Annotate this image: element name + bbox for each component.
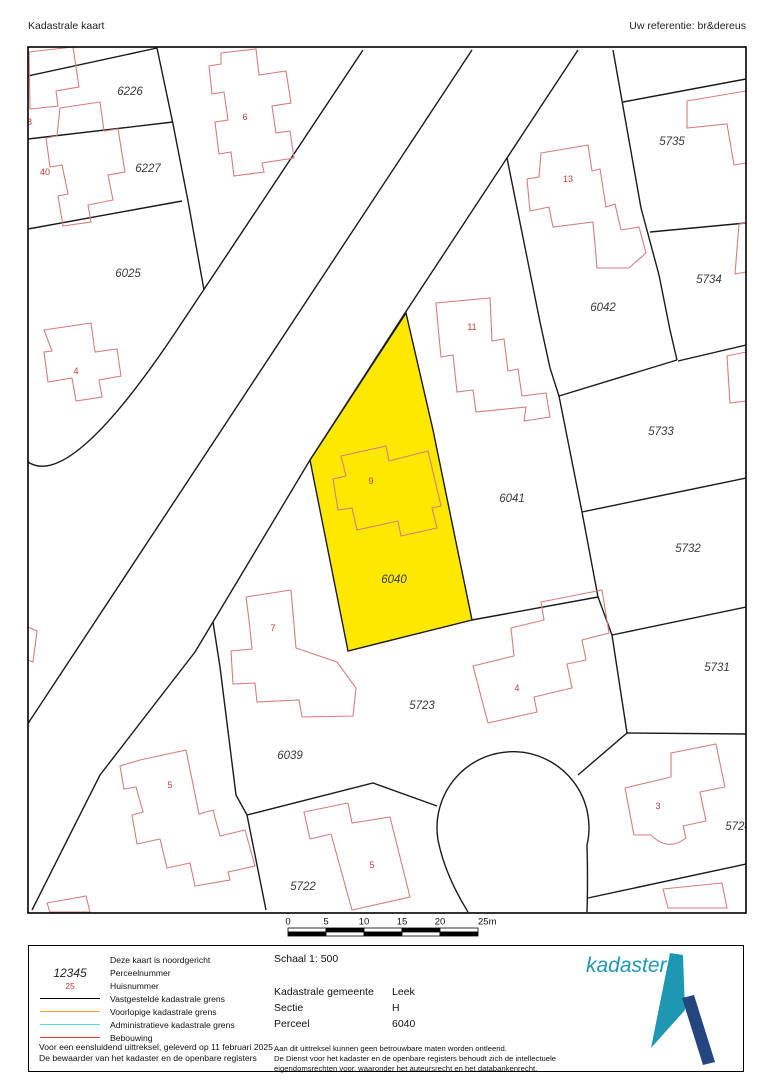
house-number-5: 5 bbox=[369, 860, 374, 870]
legend-line-swatch bbox=[40, 1037, 100, 1038]
parcel-boundary-16 bbox=[612, 607, 746, 635]
house-number-9: 9 bbox=[368, 476, 373, 486]
parcel-label-5734: 5734 bbox=[696, 274, 722, 286]
building-7 bbox=[231, 590, 356, 717]
house-number-40: 40 bbox=[40, 167, 50, 177]
legend-label-0: Deze kaart is noordgericht bbox=[110, 955, 210, 965]
legend-label-1: Perceelnummer bbox=[110, 968, 171, 978]
scale-segment-bottom-2 bbox=[364, 932, 402, 936]
house-number-11: 11 bbox=[467, 322, 476, 332]
building-partial-bottom-left bbox=[47, 896, 90, 912]
detail-label-2: Perceel bbox=[274, 1018, 392, 1030]
legend-row-2: 25Huisnummer bbox=[39, 979, 235, 992]
parcel-boundary-2 bbox=[32, 50, 578, 910]
legend-row-3: Vastgestelde kadastrale grens bbox=[39, 992, 235, 1005]
house-number-38: 38 bbox=[22, 117, 32, 127]
legend-line-swatch bbox=[40, 1011, 100, 1012]
legend-row-0: Deze kaart is noordgericht bbox=[39, 953, 235, 966]
legend-line-swatch bbox=[40, 1024, 100, 1025]
disclaimer: Aan dit uittreksel kunnen geen betrouwba… bbox=[274, 1044, 556, 1074]
house-number-6: 6 bbox=[242, 112, 247, 122]
parcel-boundary-11 bbox=[623, 79, 746, 102]
legend-sample-6 bbox=[39, 1037, 101, 1038]
parcel-boundary-18 bbox=[627, 733, 746, 734]
parcel-label-6039: 6039 bbox=[277, 750, 303, 762]
disclaimer-line-1: Aan dit uittreksel kunnen geen betrouwba… bbox=[274, 1044, 556, 1054]
building-40 bbox=[46, 102, 125, 226]
building-3 bbox=[625, 744, 725, 844]
kadaster-logo: kadaster bbox=[567, 948, 737, 1070]
legend-row-4: Voorlopige kadastrale grens bbox=[39, 1005, 235, 1018]
parcel-label-6025: 6025 bbox=[115, 268, 141, 280]
parcel-label-6042: 6042 bbox=[590, 302, 616, 314]
parcel-boundary-22 bbox=[437, 752, 589, 912]
parcel-boundary-9 bbox=[559, 360, 677, 396]
parcel-label-5732: 5732 bbox=[675, 543, 701, 555]
parcel-boundary-12 bbox=[650, 223, 746, 232]
parcel-label-6226: 6226 bbox=[117, 86, 143, 98]
parcel-boundary-5 bbox=[28, 201, 182, 229]
parcel-boundary-10 bbox=[670, 330, 677, 360]
legend-panel: Deze kaart is noordgericht12345Perceelnu… bbox=[28, 945, 744, 1072]
scale-tick-20: 20 bbox=[435, 917, 446, 928]
parcel-label-5731: 5731 bbox=[704, 662, 730, 674]
building-partial-5734 bbox=[735, 223, 746, 274]
parcel-label-6040: 6040 bbox=[381, 574, 407, 586]
parcel-boundary-0 bbox=[28, 50, 363, 466]
building-partial-left-edge bbox=[28, 627, 37, 662]
legend-sample-3 bbox=[39, 998, 101, 999]
scale-tick-5: 5 bbox=[323, 917, 328, 928]
house-number-3: 3 bbox=[655, 801, 660, 811]
parcel-boundary-15 bbox=[582, 478, 746, 512]
building-partial-5735 bbox=[687, 91, 746, 165]
parcel-label-5723: 5723 bbox=[409, 700, 435, 712]
legend-rows: Deze kaart is noordgericht12345Perceelnu… bbox=[39, 953, 235, 1044]
scale-tick-0: 0 bbox=[285, 917, 290, 928]
parcel-boundary-23 bbox=[213, 622, 266, 910]
parcel-boundary-3 bbox=[28, 48, 157, 76]
detail-value-1: H bbox=[392, 1002, 400, 1014]
building-4-left bbox=[44, 323, 121, 401]
detail-row-2: Perceel6040 bbox=[274, 1018, 415, 1030]
parcel-boundary-8 bbox=[507, 158, 559, 396]
house-number-4: 4 bbox=[514, 683, 519, 693]
parcel-boundary-20 bbox=[588, 864, 746, 898]
legend-sample-4 bbox=[39, 1011, 101, 1012]
building-6 bbox=[209, 49, 294, 176]
detail-label-1: Sectie bbox=[274, 1002, 392, 1014]
scale-segment-bottom-0 bbox=[288, 932, 326, 936]
parcel-label-5733: 5733 bbox=[648, 426, 674, 438]
legend-row-5: Administratieve kadastrale grens bbox=[39, 1018, 235, 1031]
detail-row-1: SectieH bbox=[274, 1002, 415, 1014]
detail-rows: Kadastrale gemeenteLeekSectieHPerceel604… bbox=[274, 986, 415, 1030]
parcel-boundary-21 bbox=[472, 597, 598, 620]
extract-details: Schaal 1: 500 Kadastrale gemeenteLeekSec… bbox=[274, 953, 415, 1034]
detail-row-0: Kadastrale gemeenteLeek bbox=[274, 986, 415, 998]
legend-row-1: 12345Perceelnummer bbox=[39, 966, 235, 979]
building-5-left bbox=[120, 750, 255, 886]
detail-value-2: 6040 bbox=[392, 1018, 415, 1030]
disclaimer-line-3: eigendomsrechten voor, waaronder het aut… bbox=[274, 1064, 556, 1074]
highlighted-parcel-6040 bbox=[310, 313, 472, 651]
detail-label-0: Kadastrale gemeente bbox=[274, 986, 392, 998]
legend-sample-2: 25 bbox=[39, 981, 101, 991]
footer-line-1: Voor een eensluidend uittreksel, gelever… bbox=[39, 1042, 273, 1053]
scale-segment-top-4 bbox=[440, 928, 478, 932]
kadaster-logo-leg-icon bbox=[682, 995, 715, 1065]
house-number-4: 4 bbox=[73, 366, 78, 376]
building-partial-bottom-right bbox=[663, 883, 727, 908]
legend-sample-5 bbox=[39, 1024, 101, 1025]
parcel-boundary-4 bbox=[28, 122, 173, 139]
legend-label-6: Bebouwing bbox=[110, 1033, 153, 1043]
legend-label-4: Voorlopige kadastrale grens bbox=[110, 1007, 217, 1017]
scale-tick-25m: 25m bbox=[478, 917, 497, 928]
parcel-boundary-19 bbox=[578, 733, 627, 775]
building-4-mid bbox=[473, 590, 609, 723]
parcel-boundary-6 bbox=[157, 48, 204, 290]
scale-bar: 0510152025m bbox=[285, 917, 496, 937]
building-partial-5732 bbox=[727, 352, 746, 403]
parcel-boundary-17 bbox=[612, 635, 627, 733]
house-number-13: 13 bbox=[563, 174, 573, 184]
parcel-label-5724: 5724 bbox=[725, 821, 751, 833]
scale-segment-top-1 bbox=[326, 928, 364, 932]
scale-tick-15: 15 bbox=[397, 917, 408, 928]
scale-label: Schaal 1: 500 bbox=[274, 953, 415, 965]
footer-line-2: De bewaarder van het kadaster en de open… bbox=[39, 1053, 273, 1064]
detail-value-0: Leek bbox=[392, 986, 415, 998]
cadastral-map: 6226622760256042573557345733573257315724… bbox=[0, 0, 760, 1080]
kadaster-logo-text: kadaster bbox=[586, 954, 668, 977]
map-content: 6226622760256042573557345733573257315724… bbox=[22, 47, 751, 912]
scale-segment-bottom-1 bbox=[326, 932, 364, 936]
building-13 bbox=[527, 145, 646, 268]
legend-footer: Voor een eensluidend uittreksel, gelever… bbox=[39, 1042, 273, 1064]
parcel-label-5722: 5722 bbox=[290, 881, 316, 893]
scale-tick-10: 10 bbox=[359, 917, 370, 928]
disclaimer-line-2: De Dienst voor het kadaster en de openba… bbox=[274, 1054, 556, 1064]
parcel-label-6041: 6041 bbox=[499, 493, 525, 505]
scale-segment-top-3 bbox=[402, 928, 440, 932]
building-5-bottom bbox=[304, 803, 410, 910]
legend-label-3: Vastgestelde kadastrale grens bbox=[110, 994, 225, 1004]
house-number-7: 7 bbox=[270, 623, 275, 633]
legend-line-swatch bbox=[40, 998, 100, 999]
parcel-boundary-13 bbox=[678, 345, 746, 361]
legend-label-5: Administratieve kadastrale grens bbox=[110, 1020, 235, 1030]
scale-segment-top-2 bbox=[364, 928, 402, 932]
scale-segment-bottom-3 bbox=[402, 932, 440, 936]
parcel-boundary-24 bbox=[247, 783, 437, 815]
legend-label-2: Huisnummer bbox=[110, 981, 159, 991]
scale-segment-top-0 bbox=[288, 928, 326, 932]
parcel-boundary-7 bbox=[613, 50, 670, 330]
building-38 bbox=[29, 47, 79, 109]
parcel-label-5735: 5735 bbox=[659, 136, 685, 148]
house-number-5: 5 bbox=[167, 780, 172, 790]
legend-sample-1: 12345 bbox=[39, 966, 101, 980]
parcel-label-6227: 6227 bbox=[135, 163, 161, 175]
scale-segment-bottom-4 bbox=[440, 932, 478, 936]
building-11 bbox=[436, 298, 550, 421]
